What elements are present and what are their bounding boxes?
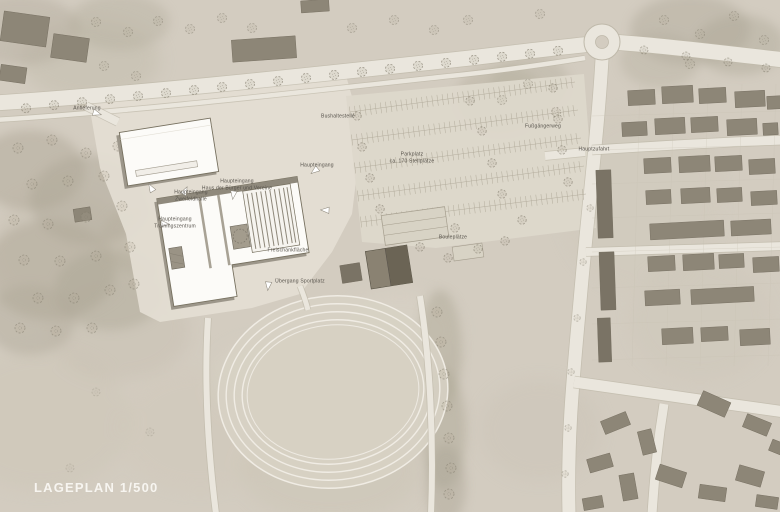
site-plan-map	[0, 0, 780, 512]
plan-scale-title: LAGEPLAN 1/500	[34, 480, 158, 495]
site-plan-canvas: Anlieferung Haupteingang Zweifeldhalle H…	[0, 0, 780, 512]
roundabout	[584, 24, 620, 60]
clubhouse-building	[365, 245, 412, 289]
